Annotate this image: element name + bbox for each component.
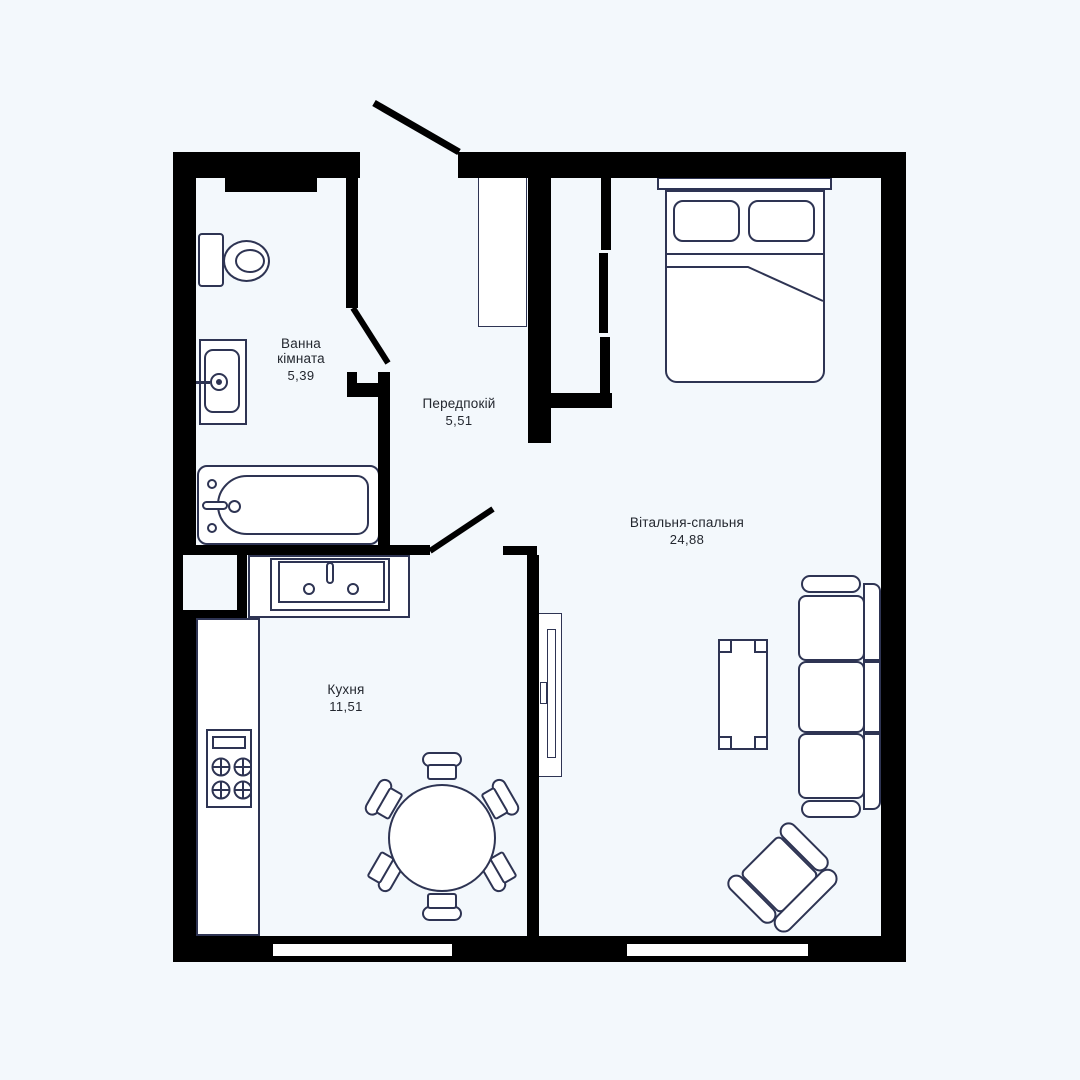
bathtub-icon: [197, 465, 380, 545]
kitchen-sink-knob-icon: [347, 583, 359, 595]
window-icon: [627, 944, 808, 956]
window-icon: [273, 944, 452, 956]
bathroom-name-line2: кімната: [277, 351, 325, 366]
wall-hall-east: [528, 175, 551, 443]
wall-right: [881, 152, 906, 962]
bathtub-knob-icon: [207, 479, 217, 489]
dining-table-icon: [388, 784, 496, 892]
hallway-name: Передпокій: [394, 396, 524, 411]
pillow-icon: [673, 200, 740, 242]
dining-chair-icon: [420, 752, 464, 782]
wall-hall-door-jamb: [503, 546, 537, 555]
closet-panel: [601, 178, 611, 250]
sofa-back-icon: [863, 733, 881, 810]
vent-duct: [225, 178, 317, 192]
sofa-armrest-icon: [801, 575, 861, 593]
closet-panel: [600, 337, 610, 393]
entrance-door-icon: [374, 103, 459, 152]
wall-top-right: [458, 152, 906, 178]
stove-icon: [206, 729, 252, 808]
washbasin-pipe-icon: [194, 381, 210, 384]
sofa-cushion-icon: [798, 661, 865, 733]
bathtub-faucet-icon: [202, 501, 228, 510]
tv-icon: [547, 629, 556, 758]
kitchen-sink-knob-icon: [303, 583, 315, 595]
dining-chair-icon: [420, 891, 464, 921]
hallway-area: 5,51: [394, 413, 524, 428]
pillow-icon: [748, 200, 815, 242]
room-label-living-bedroom: Вітальня-спальня 24,88: [602, 515, 772, 547]
wall-bathroom-east-lower: [378, 372, 390, 555]
kitchen-area: 11,51: [286, 699, 406, 714]
bathtub-knob-icon: [207, 523, 217, 533]
kitchen-faucet-icon: [326, 562, 334, 584]
room-label-hallway: Передпокій 5,51: [394, 396, 524, 428]
tv-unit-icon: [538, 613, 562, 777]
bathroom-area: 5,39: [241, 368, 361, 383]
interior-door-icon: [430, 509, 493, 551]
living-bedroom-area: 24,88: [602, 532, 772, 547]
bathtub-drain-icon: [228, 500, 241, 513]
table-leg-icon: [754, 639, 768, 653]
closet-south-stub: [551, 393, 612, 408]
sofa-back-icon: [863, 661, 881, 733]
table-leg-icon: [754, 736, 768, 750]
tv-bracket-icon: [540, 682, 547, 704]
washbasin-drain-icon: [216, 379, 222, 385]
armchair-icon: [715, 810, 851, 946]
room-label-bathroom: Ванна кімната 5,39: [241, 336, 361, 383]
kitchen-name: Кухня: [286, 682, 406, 697]
bed-headboard-icon: [657, 177, 832, 190]
kitchen-sink-counter-icon: [248, 555, 410, 618]
stove-panel-icon: [212, 736, 246, 749]
wall-top-left: [173, 152, 360, 178]
toilet-bowl-icon: [235, 249, 265, 273]
wardrobe-icon: [478, 177, 527, 327]
table-leg-icon: [718, 639, 732, 653]
table-leg-icon: [718, 736, 732, 750]
toilet-tank-icon: [198, 233, 224, 287]
room-label-kitchen: Кухня 11,51: [286, 682, 406, 714]
wall-bathroom-east-upper: [346, 178, 358, 308]
floor-plan: Ванна кімната 5,39 Передпокій 5,51 Кухня…: [0, 0, 1080, 1080]
bathroom-name-line1: Ванна: [281, 336, 321, 351]
sofa-icon: [798, 575, 882, 818]
ventilation-shaft-icon: [183, 555, 237, 610]
sofa-back-icon: [863, 583, 881, 661]
sofa-armrest-icon: [801, 800, 861, 818]
living-bedroom-name: Вітальня-спальня: [602, 515, 772, 530]
sofa-cushion-icon: [798, 733, 865, 799]
coffee-table-icon: [718, 639, 768, 750]
sofa-cushion-icon: [798, 595, 865, 661]
closet-panel: [599, 253, 608, 333]
wall-kitchen-living: [527, 555, 539, 936]
stove-burners-icon: [208, 754, 250, 806]
